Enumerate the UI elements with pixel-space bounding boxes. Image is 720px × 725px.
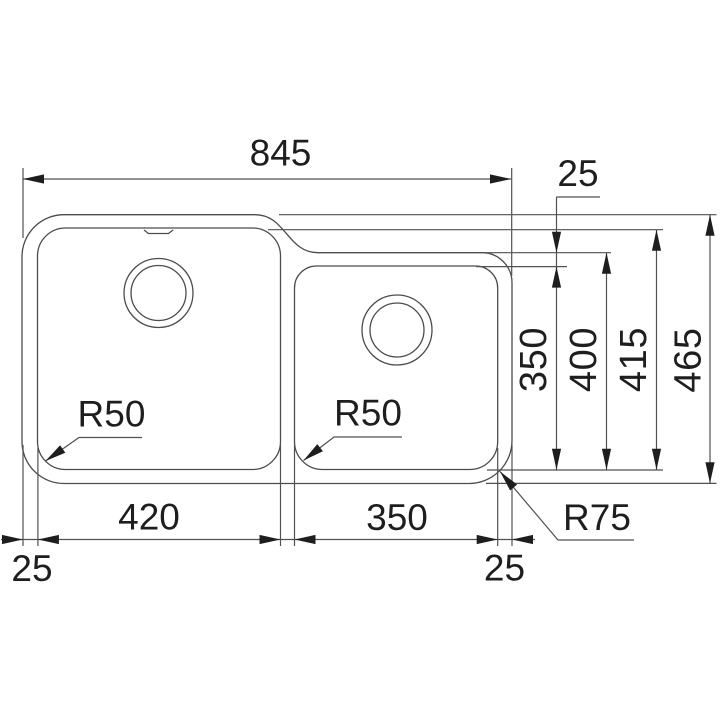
svg-text:400: 400	[563, 327, 605, 392]
svg-text:415: 415	[613, 327, 655, 392]
svg-text:R75: R75	[563, 497, 631, 538]
svg-text:350: 350	[513, 327, 555, 392]
svg-text:845: 845	[250, 133, 312, 174]
svg-text:350: 350	[366, 497, 428, 538]
svg-text:420: 420	[118, 497, 180, 538]
svg-text:465: 465	[668, 327, 710, 392]
svg-text:R50: R50	[78, 394, 146, 435]
svg-text:25: 25	[484, 548, 525, 589]
svg-text:R50: R50	[334, 393, 402, 434]
svg-text:25: 25	[557, 153, 598, 194]
svg-text:25: 25	[11, 548, 52, 589]
